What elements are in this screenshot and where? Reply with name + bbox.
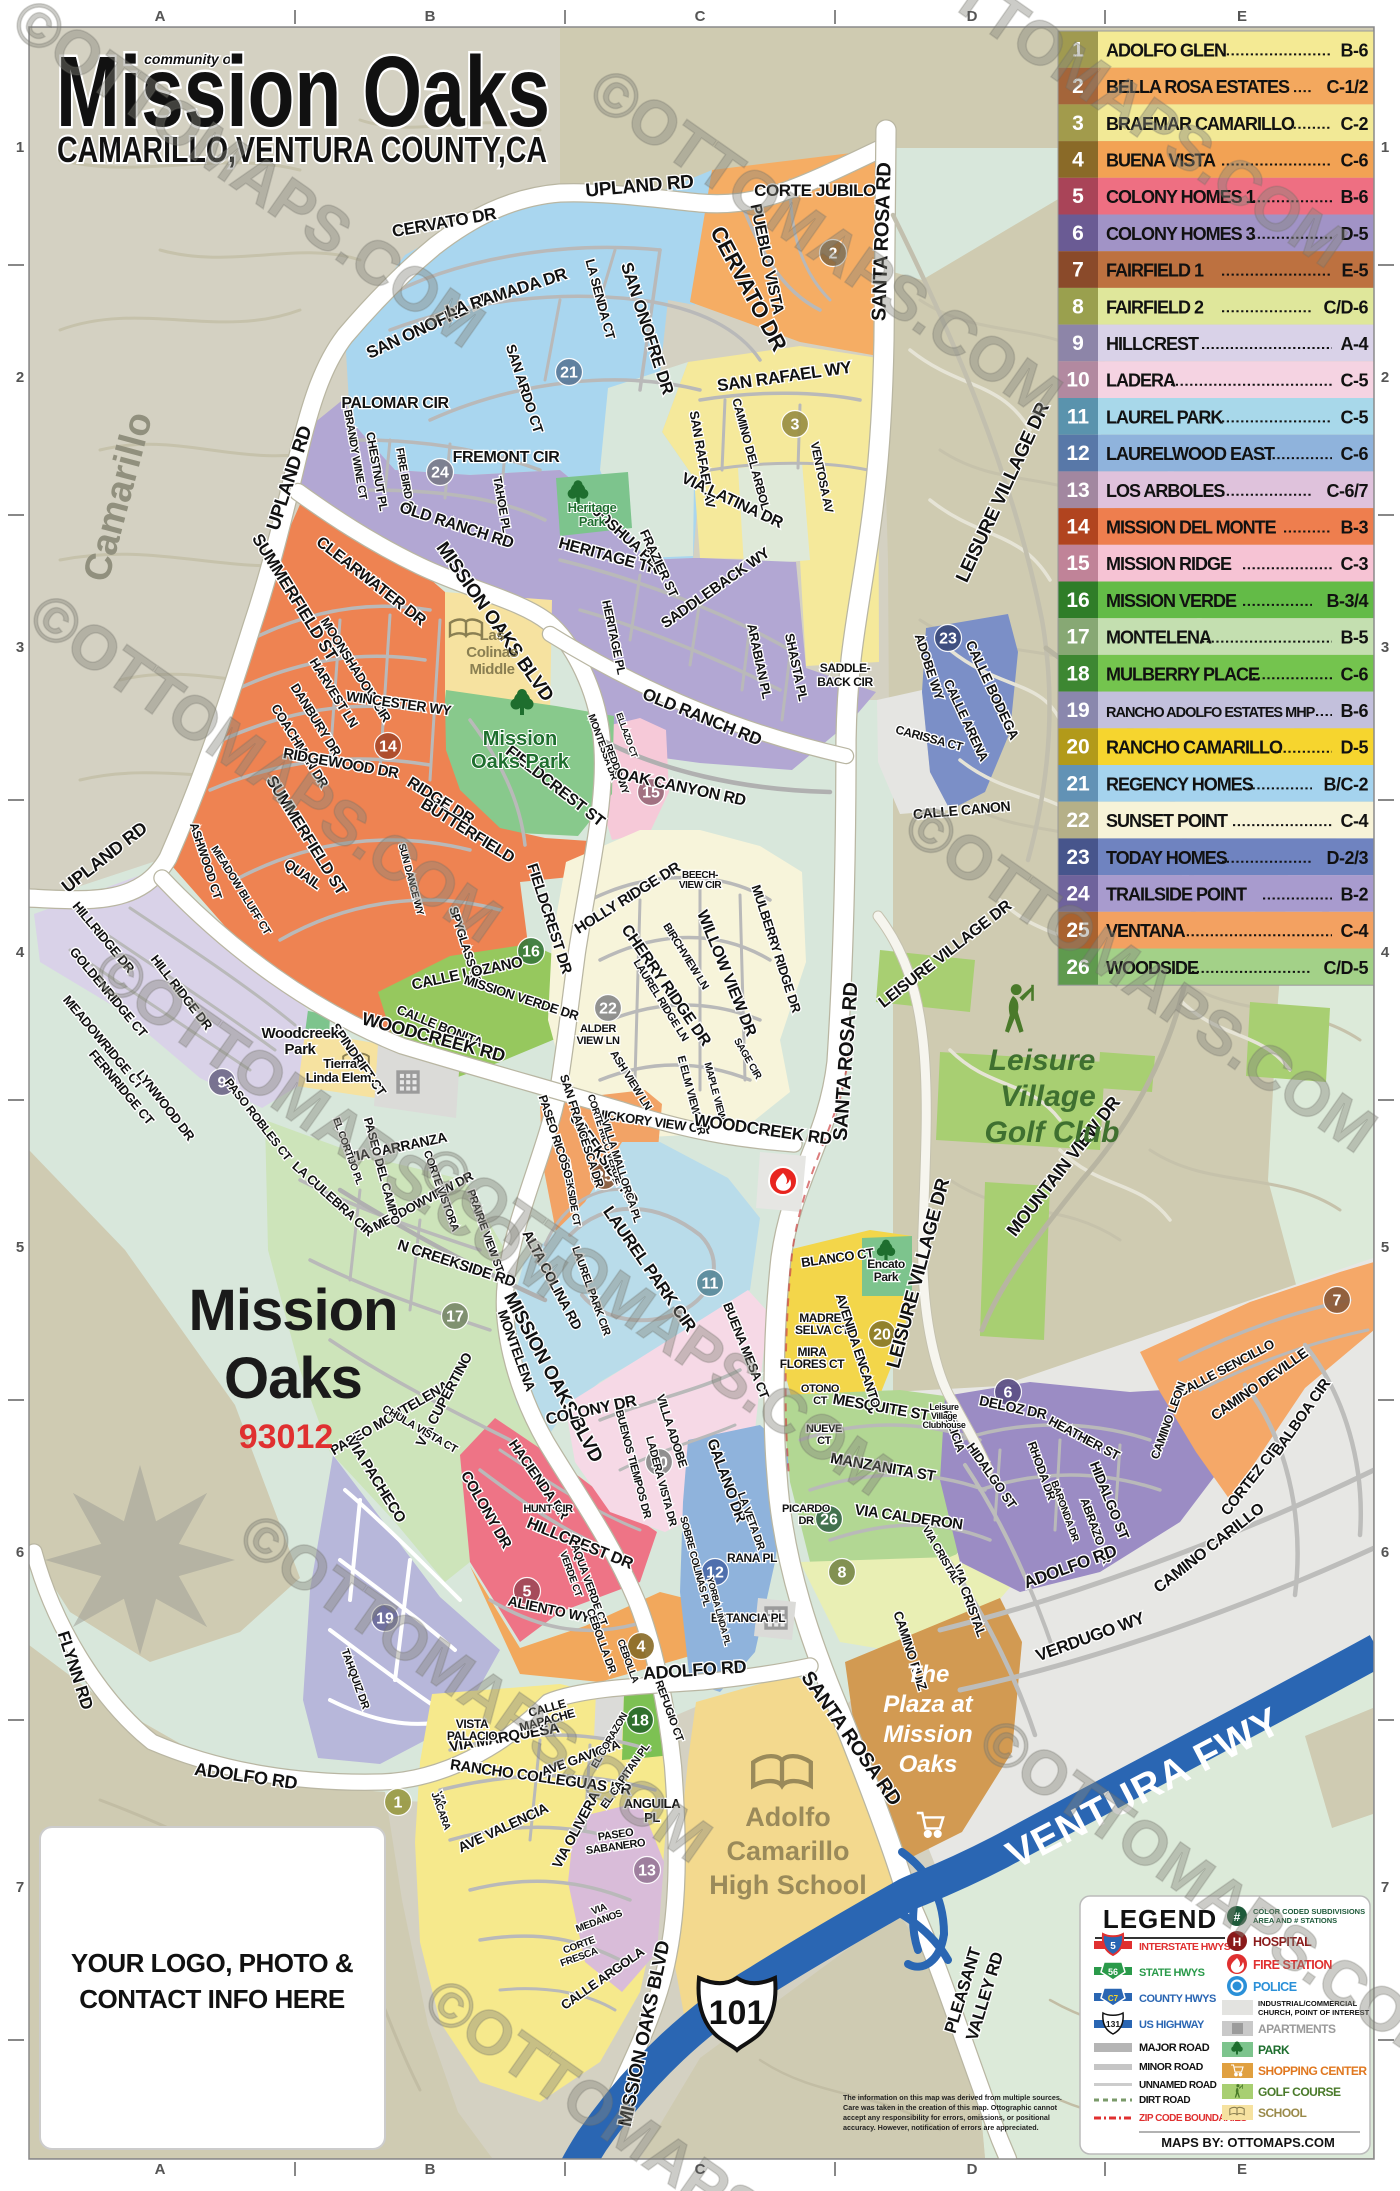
svg-text:Mission: Mission (483, 728, 557, 750)
svg-text:Encato: Encato (867, 1257, 905, 1271)
svg-text:4: 4 (637, 1639, 646, 1656)
svg-text:1: 1 (16, 139, 24, 156)
svg-text:14: 14 (379, 739, 397, 756)
svg-text:REGENCY HOMES: REGENCY HOMES (1106, 774, 1254, 794)
svg-text:17: 17 (446, 1309, 464, 1326)
svg-text:18: 18 (1066, 662, 1090, 685)
svg-text:7: 7 (16, 1879, 24, 1896)
svg-text:4: 4 (1381, 944, 1390, 961)
svg-text:C7: C7 (1108, 1994, 1119, 2003)
svg-text:B-3: B-3 (1340, 518, 1368, 538)
svg-text:The information on this map wa: The information on this map was derived … (843, 2093, 1062, 2102)
svg-text:Leisure: Leisure (989, 1044, 1096, 1077)
svg-text:8: 8 (838, 1565, 847, 1582)
svg-text:14: 14 (1066, 516, 1090, 539)
svg-text:C/D-5: C/D-5 (1323, 958, 1368, 978)
svg-text:23: 23 (1066, 846, 1089, 869)
svg-text:C-5: C-5 (1340, 407, 1368, 427)
svg-text:Middle: Middle (469, 661, 514, 678)
svg-text:C-4: C-4 (1340, 921, 1368, 941)
svg-text:C-4: C-4 (1340, 811, 1368, 831)
svg-text:Las: Las (480, 627, 505, 644)
svg-text:E: E (1237, 2161, 1247, 2178)
svg-text:3: 3 (791, 417, 800, 434)
svg-text:Oaks: Oaks (899, 1751, 958, 1778)
svg-text:2: 2 (16, 369, 24, 386)
svg-text:16: 16 (522, 944, 540, 961)
svg-text:PALOMAR CIR: PALOMAR CIR (341, 395, 449, 412)
svg-text:C-1/2: C-1/2 (1326, 77, 1368, 97)
svg-text:STATE HWYS: STATE HWYS (1139, 1967, 1205, 1979)
svg-text:B: B (425, 2161, 436, 2178)
svg-text:Mission: Mission (883, 1721, 972, 1748)
svg-text:PICARDO: PICARDO (782, 1503, 831, 1515)
svg-text:Tierra: Tierra (323, 1056, 358, 1071)
svg-text:MISSION RIDGE: MISSION RIDGE (1106, 554, 1232, 574)
svg-text:18: 18 (631, 1713, 649, 1730)
svg-text:6: 6 (1381, 1544, 1389, 1561)
svg-text:A-4: A-4 (1340, 334, 1368, 354)
svg-text:RANCHO ADOLFO ESTATES MHP: RANCHO ADOLFO ESTATES MHP (1106, 705, 1316, 721)
svg-text:accuracy. However, notificatio: accuracy. However, notification of error… (843, 2123, 1039, 2132)
svg-text:D-2/3: D-2/3 (1326, 848, 1368, 868)
svg-text:Oaks: Oaks (224, 1346, 362, 1411)
svg-text:The: The (907, 1661, 950, 1688)
svg-text:A: A (155, 8, 166, 25)
svg-text:B-6: B-6 (1340, 701, 1368, 721)
svg-text:D: D (967, 2161, 978, 2178)
svg-text:GOLF COURSE: GOLF COURSE (1258, 2085, 1341, 2099)
svg-text:C/D-6: C/D-6 (1323, 297, 1368, 317)
svg-text:UNNAMED ROAD: UNNAMED ROAD (1139, 2080, 1217, 2091)
svg-text:FAIRFIELD 1: FAIRFIELD 1 (1106, 261, 1204, 281)
svg-text:D-5: D-5 (1340, 738, 1368, 758)
svg-text:5: 5 (1381, 1239, 1389, 1256)
svg-text:C: C (695, 8, 706, 25)
svg-text:CAMARILLO,VENTURA COUNTY,CA: CAMARILLO,VENTURA COUNTY,CA (57, 129, 547, 170)
svg-text:8: 8 (1072, 295, 1084, 318)
svg-text:A: A (155, 2161, 166, 2178)
svg-text:SUNSET POINT: SUNSET POINT (1106, 811, 1228, 831)
svg-text:2: 2 (1381, 369, 1389, 386)
svg-text:High School: High School (709, 1870, 867, 1900)
svg-text:LADERA: LADERA (1106, 371, 1176, 391)
svg-text:MISSION DEL MONTE: MISSION DEL MONTE (1106, 518, 1277, 538)
svg-text:C-2: C-2 (1340, 114, 1368, 134)
svg-text:US HIGHWAY: US HIGHWAY (1139, 2019, 1205, 2031)
svg-text:INTERSTATE HWYS: INTERSTATE HWYS (1139, 1941, 1231, 1953)
svg-text:Golf Club: Golf Club (985, 1116, 1120, 1149)
svg-text:YOUR LOGO, PHOTO &: YOUR LOGO, PHOTO & (71, 1948, 353, 1978)
svg-text:Oaks Park: Oaks Park (471, 751, 570, 773)
svg-text:Park: Park (874, 1270, 899, 1284)
svg-text:9: 9 (1072, 332, 1084, 355)
svg-text:20: 20 (1066, 736, 1089, 759)
svg-text:19: 19 (1066, 699, 1089, 722)
svg-text:COUNTY HWYS: COUNTY HWYS (1139, 1993, 1216, 2005)
svg-text:C-6: C-6 (1340, 151, 1368, 171)
svg-text:HUNT CIR: HUNT CIR (523, 1503, 573, 1515)
svg-text:APARTMENTS: APARTMENTS (1258, 2022, 1336, 2036)
svg-text:B-6: B-6 (1340, 187, 1368, 207)
svg-text:4: 4 (1072, 149, 1084, 172)
svg-text:23: 23 (939, 631, 957, 648)
svg-text:PARK: PARK (1258, 2043, 1290, 2057)
svg-text:LAUREL PARK: LAUREL PARK (1106, 407, 1223, 427)
svg-text:MISSION VERDE: MISSION VERDE (1106, 591, 1237, 611)
svg-text:B-3/4: B-3/4 (1326, 591, 1368, 611)
svg-text:7: 7 (1333, 1293, 1342, 1310)
svg-text:12: 12 (1066, 442, 1089, 465)
svg-text:131: 131 (1106, 2019, 1120, 2029)
svg-text:5: 5 (16, 1239, 24, 1256)
svg-text:11: 11 (702, 1276, 719, 1293)
svg-text:Clubhouse: Clubhouse (923, 1420, 966, 1430)
svg-text:Mission: Mission (189, 1278, 398, 1343)
svg-text:Woodcreek: Woodcreek (262, 1025, 340, 1042)
svg-text:HILLCREST: HILLCREST (1106, 334, 1199, 354)
svg-text:56: 56 (1108, 1967, 1118, 1977)
svg-text:accept any responsibility for: accept any responsibility for errors, om… (843, 2113, 1050, 2122)
svg-text:7: 7 (1381, 1879, 1389, 1896)
svg-text:Village: Village (1000, 1080, 1096, 1113)
svg-text:ALDER: ALDER (580, 1023, 616, 1035)
svg-text:DR: DR (798, 1515, 814, 1527)
svg-text:Adolfo: Adolfo (745, 1802, 830, 1832)
svg-text:7: 7 (1072, 259, 1084, 282)
svg-text:6: 6 (1072, 222, 1084, 245)
svg-text:13: 13 (638, 1863, 656, 1880)
svg-text:21: 21 (1066, 772, 1090, 795)
svg-text:CONTACT INFO HERE: CONTACT INFO HERE (79, 1984, 345, 2014)
svg-text:FAIRFIELD 2: FAIRFIELD 2 (1106, 297, 1204, 317)
svg-text:22: 22 (1066, 809, 1089, 832)
svg-text:3: 3 (16, 639, 24, 656)
svg-text:17: 17 (1066, 626, 1089, 649)
svg-text:LAURELWOOD EAST: LAURELWOOD EAST (1106, 444, 1275, 464)
svg-text:Park: Park (579, 514, 607, 529)
svg-text:B: B (425, 8, 436, 25)
svg-text:5: 5 (1110, 1941, 1116, 1952)
svg-text:Colinas: Colinas (466, 644, 517, 661)
svg-text:COLONY HOMES 3: COLONY HOMES 3 (1106, 224, 1256, 244)
svg-text:C: C (695, 2161, 706, 2178)
svg-text:11: 11 (1067, 405, 1090, 428)
svg-text:5: 5 (1072, 185, 1084, 208)
svg-text:VIEW CIR: VIEW CIR (679, 880, 723, 891)
svg-text:E-5: E-5 (1341, 261, 1368, 281)
svg-text:TRAILSIDE POINT: TRAILSIDE POINT (1106, 885, 1247, 905)
svg-text:C-6/7: C-6/7 (1326, 481, 1368, 501)
svg-text:C-6: C-6 (1340, 444, 1368, 464)
svg-text:15: 15 (1066, 552, 1090, 575)
svg-text:22: 22 (599, 1001, 617, 1018)
svg-text:C-6: C-6 (1340, 664, 1368, 684)
svg-text:MINOR ROAD: MINOR ROAD (1139, 2061, 1204, 2073)
svg-text:RANA PL: RANA PL (727, 1551, 777, 1565)
svg-text:E: E (1237, 8, 1247, 25)
svg-text:13: 13 (1066, 479, 1089, 502)
svg-text:Camarillo: Camarillo (726, 1836, 849, 1866)
svg-text:16: 16 (1066, 589, 1089, 612)
svg-text:B-6: B-6 (1340, 40, 1368, 60)
svg-text:1: 1 (1381, 139, 1389, 156)
svg-text:VIEW LN: VIEW LN (576, 1035, 619, 1047)
svg-text:ADOLFO GLEN: ADOLFO GLEN (1106, 40, 1226, 60)
svg-text:Care was taken in the creation: Care was taken in the creation of this m… (843, 2103, 1058, 2112)
svg-text:SCHOOL: SCHOOL (1258, 2106, 1307, 2120)
svg-text:C-3: C-3 (1340, 554, 1368, 574)
svg-text:B/C-2: B/C-2 (1323, 774, 1368, 794)
svg-text:BACK CIR: BACK CIR (817, 675, 873, 689)
svg-text:24: 24 (431, 465, 449, 482)
svg-text:1: 1 (394, 1795, 403, 1812)
svg-text:DIRT ROAD: DIRT ROAD (1139, 2095, 1190, 2106)
svg-text:SELVA CT: SELVA CT (795, 1323, 850, 1337)
svg-text:MAJOR ROAD: MAJOR ROAD (1139, 2042, 1210, 2054)
svg-text:B-5: B-5 (1340, 628, 1368, 648)
svg-text:D: D (967, 8, 978, 25)
svg-text:TODAY HOMES: TODAY HOMES (1106, 848, 1228, 868)
svg-text:SHOPPING CENTER: SHOPPING CENTER (1258, 2064, 1367, 2078)
svg-text:20: 20 (873, 1327, 891, 1344)
svg-text:3: 3 (1381, 639, 1389, 656)
svg-text:93012: 93012 (239, 1418, 334, 1456)
svg-text:Plaza at: Plaza at (883, 1691, 973, 1718)
svg-text:MONTELENA: MONTELENA (1106, 628, 1212, 648)
svg-text:SADDLE-: SADDLE- (820, 661, 871, 675)
svg-text:B-2: B-2 (1340, 885, 1368, 905)
svg-text:FREMONT CIR: FREMONT CIR (453, 449, 561, 466)
svg-text:21: 21 (560, 365, 578, 382)
svg-text:Heritage: Heritage (568, 500, 617, 515)
svg-text:MAPS BY: OTTOMAPS.COM: MAPS BY: OTTOMAPS.COM (1161, 2135, 1335, 2150)
svg-text:C-5: C-5 (1340, 371, 1368, 391)
svg-text:FLORES CT: FLORES CT (780, 1357, 845, 1371)
svg-text:4: 4 (16, 944, 25, 961)
svg-text:RANCHO CAMARILLO: RANCHO CAMARILLO (1106, 738, 1283, 758)
svg-text:101: 101 (709, 1994, 766, 2032)
svg-text:6: 6 (16, 1544, 24, 1561)
svg-text:LOS ARBOLES: LOS ARBOLES (1106, 481, 1225, 501)
svg-text:MULBERRY PLACE: MULBERRY PLACE (1106, 664, 1260, 684)
